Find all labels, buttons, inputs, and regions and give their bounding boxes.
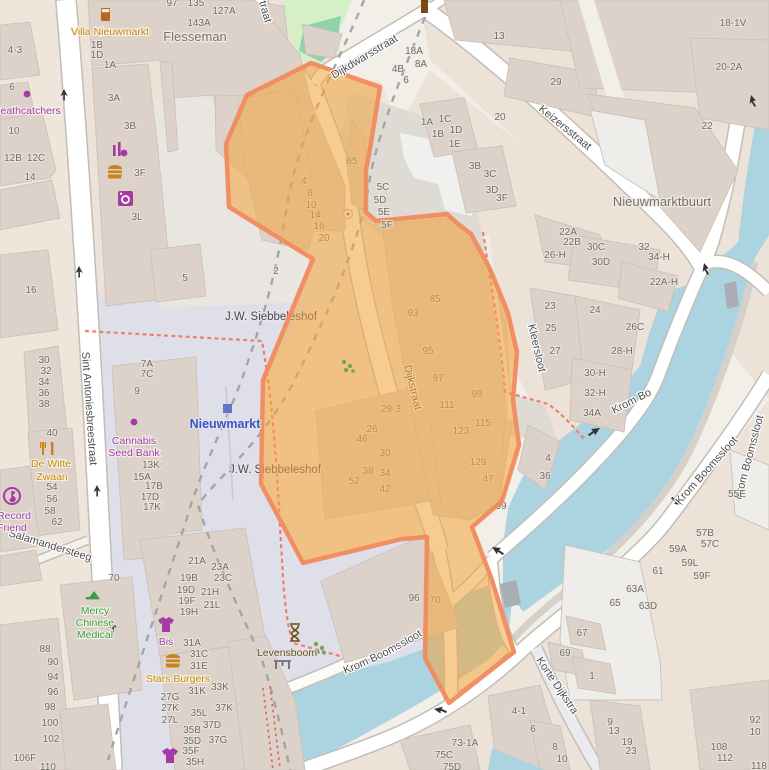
svg-text:8: 8 <box>552 742 558 753</box>
svg-text:54: 54 <box>46 482 58 493</box>
svg-text:110: 110 <box>40 762 56 770</box>
svg-text:Record: Record <box>0 510 31 522</box>
svg-text:6: 6 <box>403 75 409 86</box>
svg-text:27K: 27K <box>161 703 179 714</box>
svg-text:37G: 37G <box>209 735 228 746</box>
svg-text:20-2A: 20-2A <box>716 62 743 73</box>
svg-text:Stars Burgers: Stars Burgers <box>146 673 210 685</box>
svg-text:59L: 59L <box>682 558 699 569</box>
svg-text:10: 10 <box>8 126 20 137</box>
svg-text:5D: 5D <box>374 195 387 206</box>
svg-text:9: 9 <box>134 386 140 397</box>
svg-text:2: 2 <box>273 266 279 277</box>
svg-text:98: 98 <box>44 702 56 713</box>
svg-text:40: 40 <box>46 428 58 439</box>
svg-text:35H: 35H <box>186 757 204 768</box>
svg-text:34-H: 34-H <box>648 252 670 263</box>
svg-text:102: 102 <box>43 734 60 745</box>
svg-text:1: 1 <box>589 671 595 682</box>
svg-text:Levensboom: Levensboom <box>257 647 317 659</box>
svg-text:118: 118 <box>751 761 767 770</box>
svg-text:4B: 4B <box>392 64 405 75</box>
svg-text:De Witte: De Witte <box>31 458 71 470</box>
svg-text:23A: 23A <box>211 562 229 573</box>
svg-text:58: 58 <box>44 506 56 517</box>
svg-text:29: 29 <box>550 77 562 88</box>
svg-text:106F: 106F <box>14 753 37 764</box>
svg-text:19F: 19F <box>178 596 195 607</box>
svg-text:6: 6 <box>530 724 536 735</box>
svg-text:59A: 59A <box>669 544 687 555</box>
svg-text:Chinese: Chinese <box>76 617 115 629</box>
svg-text:108: 108 <box>711 742 728 753</box>
svg-text:30C: 30C <box>587 242 605 253</box>
svg-text:21L: 21L <box>204 600 221 611</box>
svg-text:26-H: 26-H <box>544 250 566 261</box>
svg-text:reathcatchers: reathcatchers <box>0 105 61 117</box>
svg-text:Friend: Friend <box>0 522 27 534</box>
svg-text:38: 38 <box>38 399 50 410</box>
svg-text:1D: 1D <box>450 125 463 136</box>
svg-text:127A: 127A <box>212 6 236 17</box>
svg-text:21A: 21A <box>188 556 206 567</box>
svg-text:36: 36 <box>539 471 551 482</box>
svg-text:Villa Nieuwmarkt: Villa Nieuwmarkt <box>71 26 149 38</box>
svg-text:6: 6 <box>9 82 15 93</box>
svg-text:23: 23 <box>625 746 637 757</box>
svg-text:32: 32 <box>40 366 52 377</box>
svg-text:73-1A: 73-1A <box>452 738 479 749</box>
svg-text:1C: 1C <box>439 114 452 125</box>
svg-text:5C: 5C <box>377 182 390 193</box>
svg-text:32-H: 32-H <box>584 388 606 399</box>
svg-text:69: 69 <box>559 648 571 659</box>
svg-text:Mercy: Mercy <box>81 605 110 617</box>
svg-text:18-1V: 18-1V <box>720 18 747 29</box>
svg-text:62: 62 <box>51 517 63 528</box>
svg-text:23: 23 <box>544 301 556 312</box>
svg-text:35B: 35B <box>183 725 201 736</box>
svg-text:31K: 31K <box>188 686 206 697</box>
svg-text:10: 10 <box>749 727 761 738</box>
svg-text:94: 94 <box>47 672 59 683</box>
svg-text:97: 97 <box>166 0 178 9</box>
svg-text:Cannabis: Cannabis <box>112 435 156 447</box>
svg-text:100: 100 <box>42 718 59 729</box>
svg-text:3F: 3F <box>134 168 146 179</box>
svg-text:31A: 31A <box>183 638 201 649</box>
svg-text:22B: 22B <box>563 237 581 248</box>
svg-text:92: 92 <box>749 715 761 726</box>
svg-text:Flesseman: Flesseman <box>163 29 227 44</box>
svg-text:36: 36 <box>38 388 50 399</box>
svg-text:27: 27 <box>549 346 561 357</box>
svg-text:22: 22 <box>701 121 713 132</box>
svg-text:18A: 18A <box>405 46 423 57</box>
svg-text:20: 20 <box>494 112 506 123</box>
svg-text:96: 96 <box>408 593 420 604</box>
svg-text:3B: 3B <box>469 161 482 172</box>
svg-text:28-H: 28-H <box>611 346 633 357</box>
svg-text:27G: 27G <box>161 692 180 703</box>
svg-text:25: 25 <box>545 323 557 334</box>
svg-text:12B: 12B <box>4 153 22 164</box>
svg-text:63D: 63D <box>639 601 657 612</box>
svg-text:13: 13 <box>493 31 505 42</box>
svg-text:57C: 57C <box>701 539 719 550</box>
svg-text:5: 5 <box>182 273 188 284</box>
svg-text:4: 4 <box>545 453 551 464</box>
svg-text:30: 30 <box>38 355 50 366</box>
svg-text:13: 13 <box>608 726 620 737</box>
svg-text:1A: 1A <box>421 117 434 128</box>
svg-text:1B: 1B <box>432 129 445 140</box>
svg-text:10: 10 <box>556 754 568 765</box>
svg-text:34A: 34A <box>583 408 601 419</box>
svg-text:56: 56 <box>46 494 58 505</box>
svg-text:3A: 3A <box>108 93 121 104</box>
svg-text:4-3: 4-3 <box>8 45 23 56</box>
svg-text:63A: 63A <box>626 584 644 595</box>
svg-text:12C: 12C <box>27 153 45 164</box>
svg-text:75D: 75D <box>443 762 461 770</box>
svg-text:17B: 17B <box>145 481 163 492</box>
svg-text:67: 67 <box>576 628 588 639</box>
svg-text:31E: 31E <box>190 661 208 672</box>
svg-text:3L: 3L <box>131 212 143 223</box>
svg-text:61: 61 <box>652 566 664 577</box>
svg-text:17K: 17K <box>143 502 161 513</box>
svg-text:4-1: 4-1 <box>512 706 527 717</box>
svg-text:37D: 37D <box>203 720 221 731</box>
svg-text:55E: 55E <box>728 489 746 500</box>
svg-text:13K: 13K <box>142 460 160 471</box>
svg-text:19D: 19D <box>177 585 195 596</box>
svg-text:Seed Bank: Seed Bank <box>108 447 160 459</box>
svg-text:30D: 30D <box>592 257 610 268</box>
svg-text:57B: 57B <box>696 528 714 539</box>
svg-text:19H: 19H <box>180 607 198 618</box>
svg-text:34: 34 <box>38 377 50 388</box>
svg-text:3B: 3B <box>124 121 137 132</box>
svg-text:5F: 5F <box>381 220 393 231</box>
svg-text:14: 14 <box>24 172 36 183</box>
svg-text:35F: 35F <box>182 746 199 757</box>
svg-text:143A: 143A <box>187 18 211 29</box>
svg-text:135: 135 <box>188 0 205 9</box>
svg-text:3F: 3F <box>496 193 508 204</box>
svg-text:16: 16 <box>25 285 37 296</box>
svg-text:Bis: Bis <box>159 636 174 648</box>
svg-text:35L: 35L <box>191 708 208 719</box>
svg-text:19B: 19B <box>180 573 198 584</box>
svg-text:33K: 33K <box>211 682 229 693</box>
svg-text:75C: 75C <box>435 750 453 761</box>
svg-text:24: 24 <box>589 305 601 316</box>
svg-text:Nieuwmarkt: Nieuwmarkt <box>190 417 262 431</box>
svg-text:90: 90 <box>47 657 59 668</box>
svg-text:112: 112 <box>717 753 733 764</box>
svg-text:26C: 26C <box>626 322 644 333</box>
svg-text:Medical: Medical <box>77 629 113 641</box>
svg-text:70: 70 <box>108 573 120 584</box>
svg-text:5E: 5E <box>378 207 391 218</box>
svg-text:65: 65 <box>609 598 621 609</box>
svg-text:Nieuwmarktbuurt: Nieuwmarktbuurt <box>613 194 712 209</box>
svg-text:31C: 31C <box>190 649 208 660</box>
svg-text:1D: 1D <box>91 50 104 61</box>
svg-text:22A-H: 22A-H <box>650 277 678 288</box>
svg-text:96: 96 <box>47 687 59 698</box>
svg-text:88: 88 <box>39 644 51 655</box>
svg-text:1E: 1E <box>449 139 462 150</box>
svg-text:37K: 37K <box>215 703 233 714</box>
svg-text:7C: 7C <box>141 369 154 380</box>
svg-text:8A: 8A <box>415 59 428 70</box>
svg-text:23C: 23C <box>214 573 232 584</box>
svg-text:30-H: 30-H <box>584 368 606 379</box>
svg-text:1A: 1A <box>104 60 117 71</box>
svg-text:27L: 27L <box>162 715 179 726</box>
svg-text:59F: 59F <box>693 571 710 582</box>
svg-text:21H: 21H <box>201 587 219 598</box>
svg-text:3C: 3C <box>484 169 497 180</box>
